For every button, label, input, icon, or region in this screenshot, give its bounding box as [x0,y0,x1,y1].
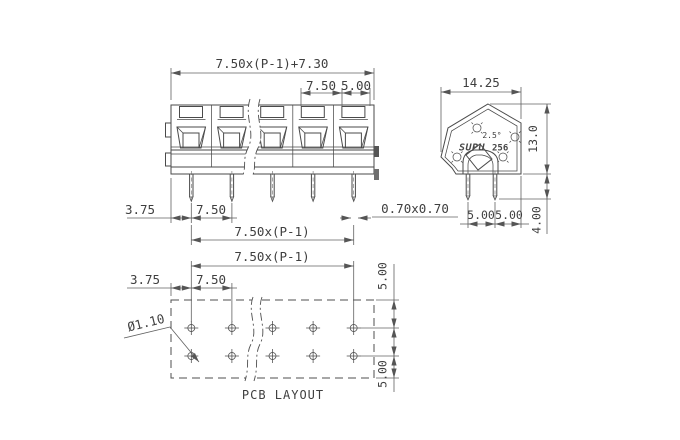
dim-pin-spacing-a: 5.00 [467,208,495,222]
dim-pcb-offset: 3.75 [130,272,160,287]
dim-pin-spacing-b: 5.00 [495,208,523,222]
dim-total-width: 7.50x(P-1)+7.30 [216,56,329,71]
left-latch-lower [166,153,172,166]
dim-offset: 3.75 [125,202,155,217]
side-view: 2.5° SUPU 256 14.25 13.0 4.00 [441,75,551,234]
technical-drawing-page: 7.50x(P-1)+7.30 7.50 5.00 3.75 7.50 0.70… [0,0,680,440]
dim-row-bottom: 5.00 [376,360,390,388]
dim-pin-square: 0.70x0.70 [381,201,449,216]
dim-pitch: 7.50 [196,202,226,217]
dim-pcb-pitch: 7.50 [196,272,226,287]
dim-pin-length: 4.00 [530,206,544,234]
pcb-layout-view: 7.50x(P-1) 3.75 7.50 Ø1.10 5.00 5.00 PCB… [124,249,399,402]
terminal-block-drawing: 7.50x(P-1)+7.30 7.50 5.00 3.75 7.50 0.70… [0,0,680,440]
pcb-holes [184,321,360,363]
dim-hole-diameter: Ø1.10 [126,311,166,335]
dim-row-top: 5.00 [376,262,390,290]
front-view: 7.50x(P-1)+7.30 7.50 5.00 3.75 7.50 0.70… [125,56,458,245]
side-pins [466,171,497,200]
dim-pcb-span: 7.50x(P-1) [234,249,309,264]
pcb-outline [171,300,374,378]
pcb-layout-title: PCB LAYOUT [242,388,324,402]
right-latch-upper [374,146,379,157]
dim-end-top: 5.00 [341,78,371,93]
dim-pin-span: 7.50x(P-1) [234,224,309,239]
model-number: 256 [492,144,508,154]
brand-logo: SUPU [459,143,486,154]
side-body-outline [441,104,521,174]
dim-pitch-top: 7.50 [306,78,336,93]
left-latch-upper [166,123,172,137]
dim-side-width: 14.25 [462,75,500,90]
right-latch-lower [374,169,379,180]
angle-label: 2.5° [482,131,501,140]
dim-side-height: 13.0 [526,125,540,153]
